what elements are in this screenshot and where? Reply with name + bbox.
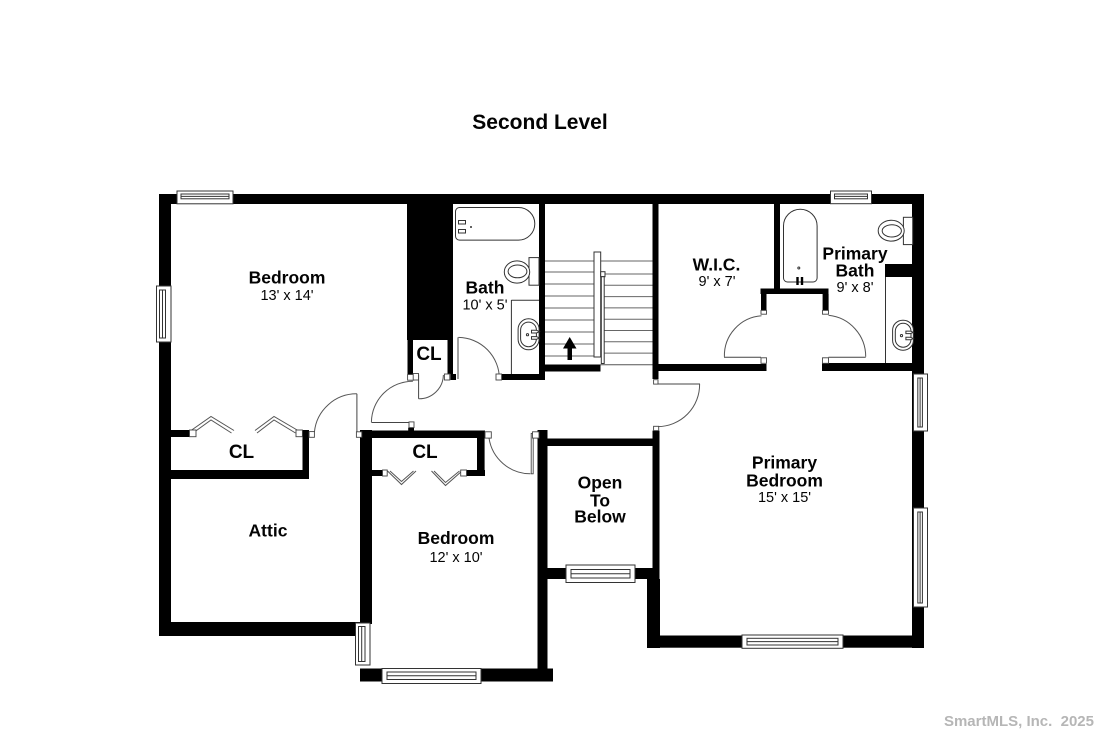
svg-text:Bedroom: Bedroom [249, 268, 326, 288]
svg-text:W.I.C.: W.I.C. [693, 255, 741, 275]
svg-text:10' x 5': 10' x 5' [462, 298, 507, 314]
svg-text:Bath: Bath [466, 278, 505, 298]
svg-text:9' x 8': 9' x 8' [837, 280, 874, 296]
svg-text:15' x 15': 15' x 15' [758, 490, 811, 506]
svg-text:Bedroom: Bedroom [746, 471, 823, 491]
svg-text:CL: CL [412, 442, 438, 463]
svg-text:Open: Open [578, 473, 623, 493]
svg-text:9' x 7': 9' x 7' [699, 274, 736, 290]
svg-text:Bedroom: Bedroom [418, 528, 495, 548]
svg-text:Second Level: Second Level [472, 111, 607, 134]
svg-text:CL: CL [416, 344, 442, 365]
svg-text:Primary: Primary [752, 453, 817, 473]
svg-text:12' x 10': 12' x 10' [429, 550, 482, 566]
svg-text:SmartMLS, Inc. 2025: SmartMLS, Inc. 2025 [944, 713, 1094, 730]
svg-text:Attic: Attic [249, 521, 288, 541]
svg-text:13' x 14': 13' x 14' [260, 288, 313, 304]
svg-text:CL: CL [229, 442, 255, 463]
svg-text:Below: Below [574, 507, 626, 527]
svg-text:Bath: Bath [836, 261, 875, 281]
